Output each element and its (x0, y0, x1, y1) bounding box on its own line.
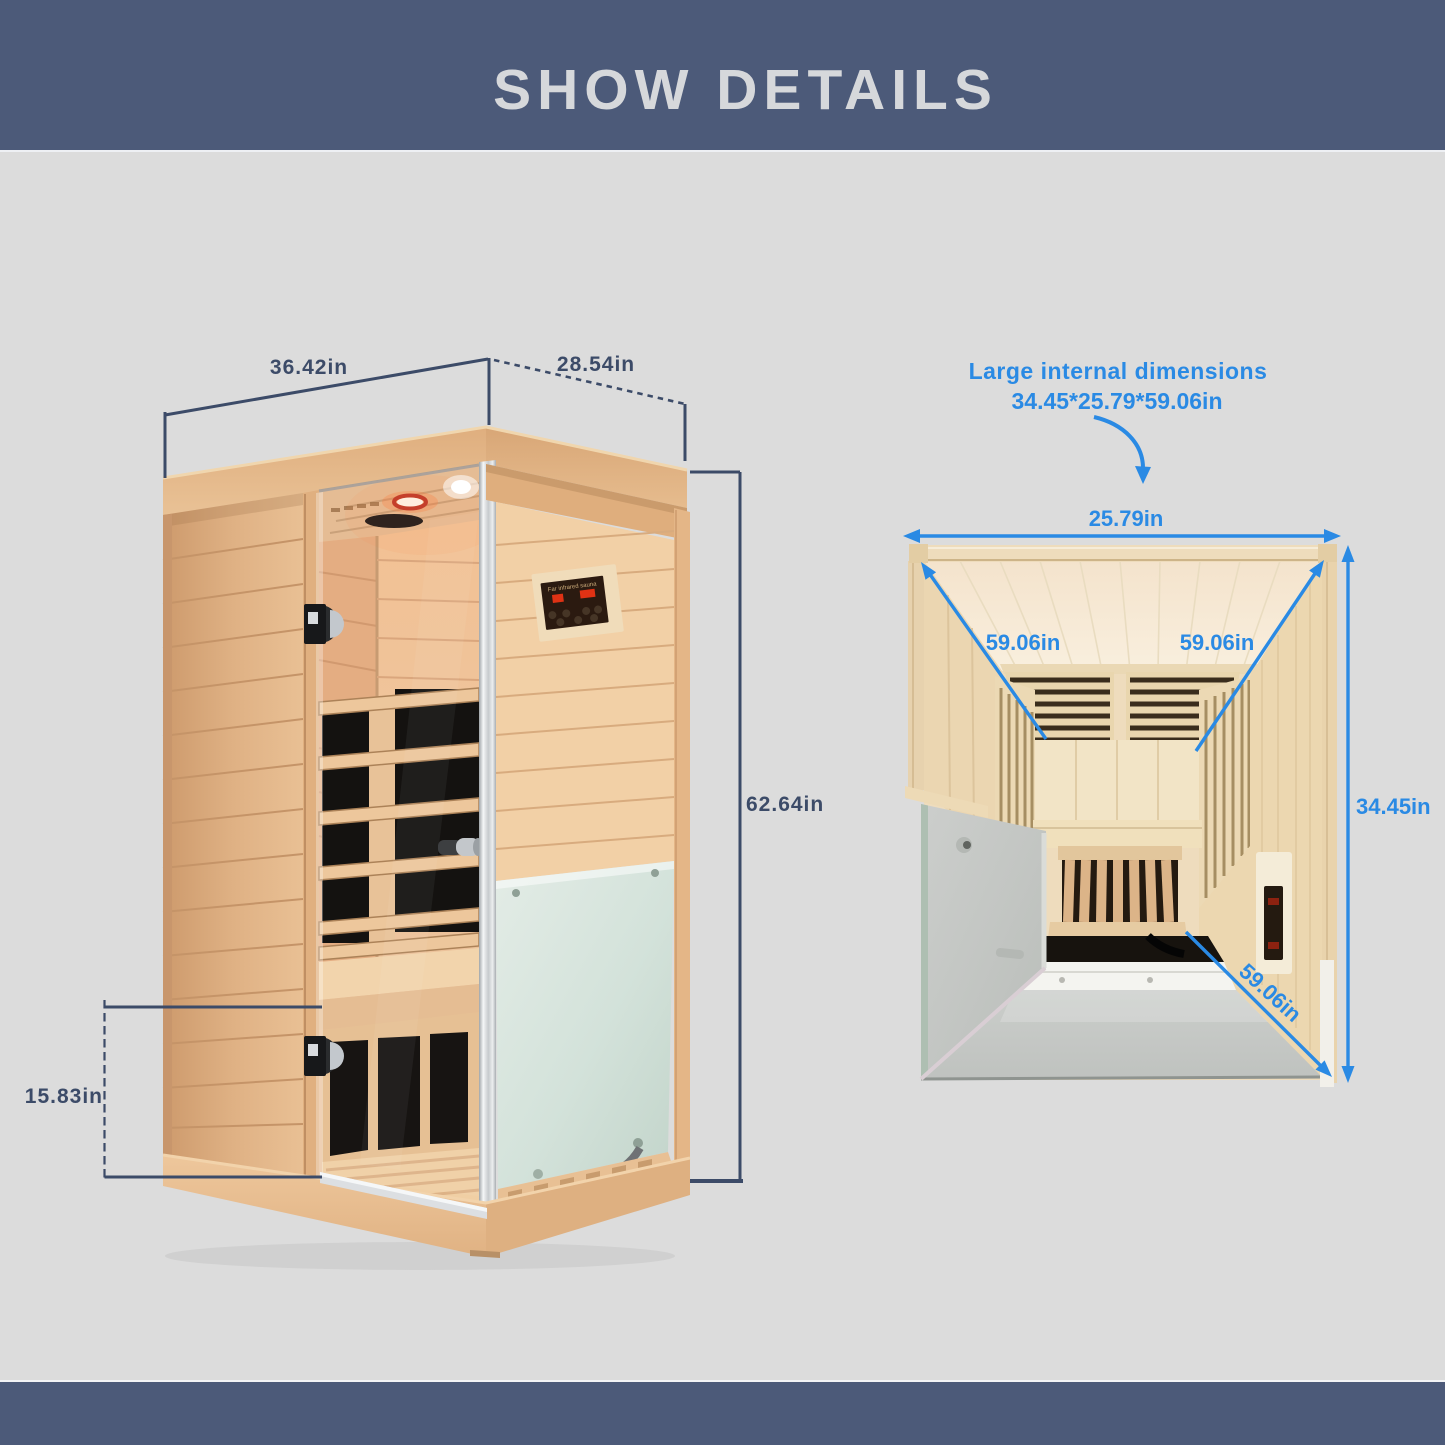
svg-text:Large internal dimensions: Large internal dimensions (969, 358, 1268, 384)
svg-text:15.83in: 15.83in (25, 1085, 103, 1108)
svg-text:36.42in: 36.42in (270, 356, 348, 379)
svg-text:59.06in: 59.06in (1180, 630, 1255, 655)
svg-text:34.45*25.79*59.06in: 34.45*25.79*59.06in (1011, 388, 1222, 414)
svg-text:25.79in: 25.79in (1089, 506, 1164, 531)
svg-text:28.54in: 28.54in (557, 353, 635, 376)
svg-text:62.64in: 62.64in (746, 793, 824, 816)
svg-text:34.45in: 34.45in (1356, 794, 1431, 819)
svg-text:59.06in: 59.06in (986, 630, 1061, 655)
